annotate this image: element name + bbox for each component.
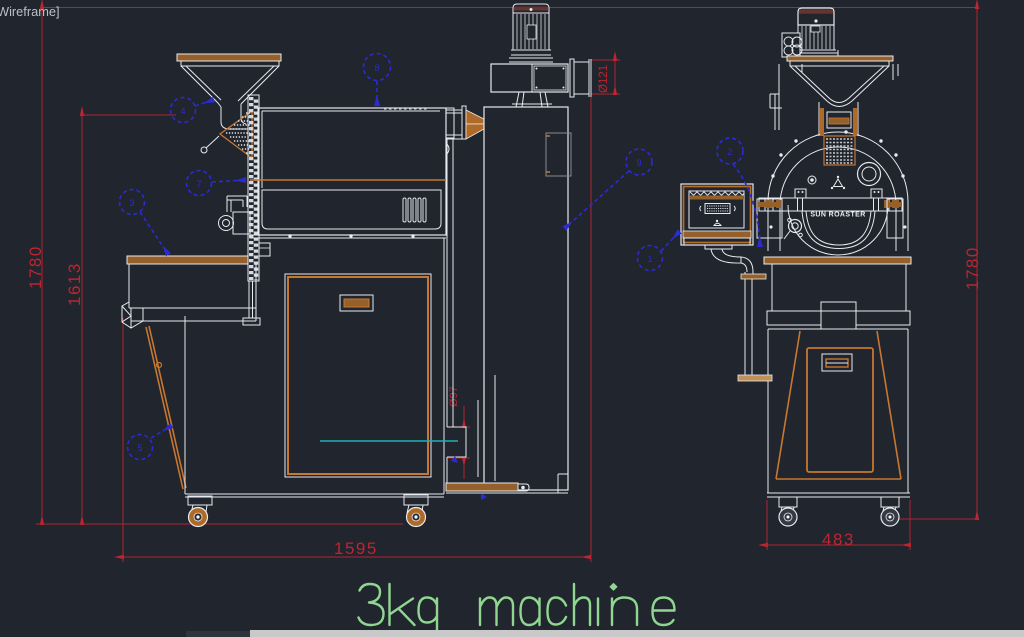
- svg-text:Ø121: Ø121: [598, 65, 610, 93]
- svg-text:7: 7: [196, 179, 201, 189]
- svg-text:2: 2: [727, 147, 732, 157]
- svg-text:483: 483: [822, 530, 855, 549]
- svg-text:9: 9: [636, 158, 641, 168]
- svg-text:1595: 1595: [334, 539, 378, 558]
- svg-text:Wireframe]: Wireframe]: [0, 4, 60, 19]
- svg-text:1613: 1613: [65, 262, 84, 306]
- svg-text:SUN ROASTER: SUN ROASTER: [810, 212, 865, 219]
- svg-text:1780: 1780: [26, 245, 45, 289]
- svg-text:1780: 1780: [963, 246, 982, 290]
- svg-text:8: 8: [374, 63, 379, 73]
- svg-text:1: 1: [647, 254, 652, 264]
- svg-text:3: 3: [129, 198, 134, 208]
- svg-text:Ø97: Ø97: [448, 386, 460, 407]
- svg-text:4: 4: [180, 106, 185, 116]
- svg-text:5: 5: [137, 443, 142, 453]
